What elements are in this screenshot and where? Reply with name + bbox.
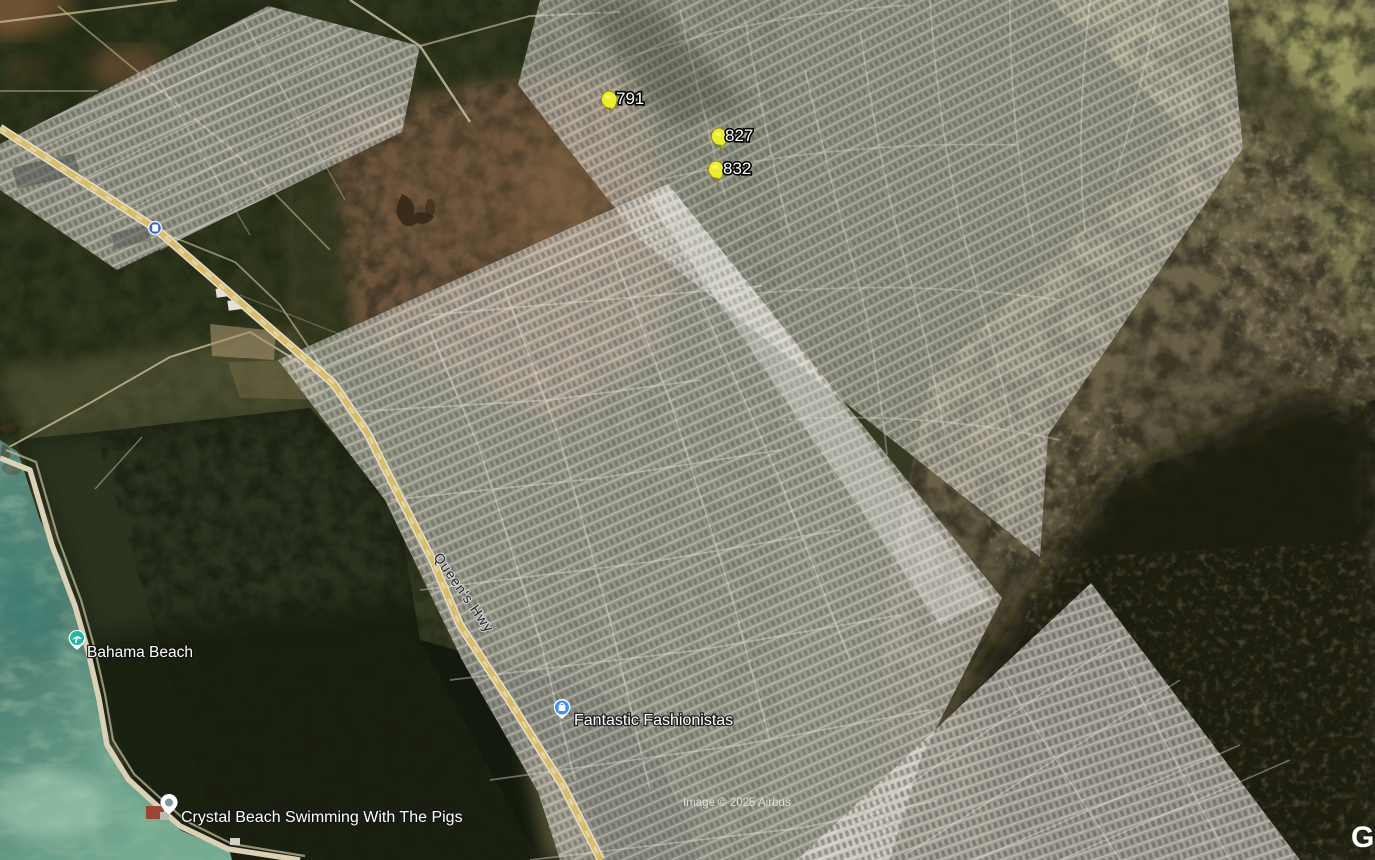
svg-text:791: 791	[616, 89, 644, 108]
svg-text:Go: Go	[1351, 821, 1375, 854]
svg-text:Crystal Beach Swimming With Th: Crystal Beach Swimming With The Pigs	[181, 809, 463, 826]
svg-text:Fantastic Fashionistas: Fantastic Fashionistas	[574, 712, 733, 729]
svg-text:Bahama Beach: Bahama Beach	[87, 644, 193, 661]
svg-text:832: 832	[723, 159, 751, 178]
svg-text:Image © 2025 Airbus: Image © 2025 Airbus	[683, 797, 791, 809]
svg-text:827: 827	[725, 126, 753, 145]
